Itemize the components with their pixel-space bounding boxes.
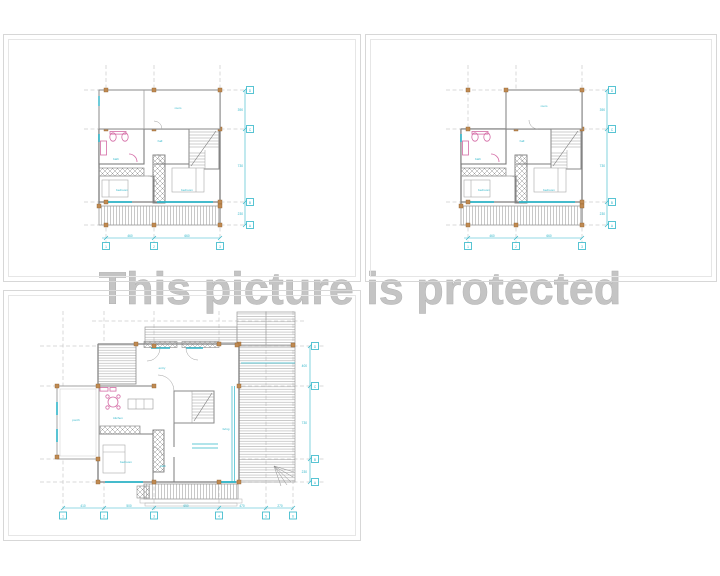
dim-right-3: 230 <box>600 212 606 216</box>
label-bed-right: bedroom <box>543 188 555 192</box>
label-bath: bath <box>475 157 481 161</box>
grid-bubble-3: 3 <box>581 245 583 249</box>
floor-plan-upper-b: room hall bath bedroom bedroom 460 660 3… <box>372 41 710 275</box>
dimension-bottom <box>60 506 297 519</box>
porch <box>57 386 99 459</box>
grid-bubble-6: 6 <box>292 515 294 519</box>
dim-bottom-3: 650 <box>183 504 189 508</box>
label-porch: porch <box>72 418 80 422</box>
floor-plan-upper-a: room hall bath bedroom bedroom 460 660 3… <box>10 41 354 275</box>
grid-bubble-1: 1 <box>62 515 64 519</box>
lintel-1 <box>144 342 177 348</box>
dim-bottom-1: 460 <box>489 234 495 238</box>
entry-steps <box>98 344 136 384</box>
label-top-room: room <box>541 104 548 108</box>
label-bath: bath <box>160 464 166 468</box>
dim-bottom-2: 660 <box>546 234 552 238</box>
grid-bubble-1: 1 <box>467 245 469 249</box>
dim-bottom-1: 410 <box>80 504 86 508</box>
label-bed-left: bedroom <box>478 188 490 192</box>
label-hall: hall <box>158 139 163 143</box>
dim-right-1: 400 <box>302 364 308 368</box>
label-bed-left: bedroom <box>116 188 128 192</box>
grid-bubble-3: 3 <box>219 245 221 249</box>
dim-bottom-5: 270 <box>277 504 283 508</box>
grid-bubble-5: 5 <box>265 515 267 519</box>
dim-right-3: 230 <box>238 212 244 216</box>
top-rooms-variant-b <box>466 88 584 129</box>
beam-hatch-h <box>100 426 140 434</box>
label-top-room: room <box>175 106 182 110</box>
grid-bubble-2: 2 <box>103 515 105 519</box>
dim-bottom-2: 500 <box>126 504 132 508</box>
label-bed-right: bedroom <box>181 188 193 192</box>
grid-bubble-4: 4 <box>218 515 220 519</box>
grid-bubble-1: 1 <box>105 245 107 249</box>
grid-bubble-b: B <box>611 201 613 205</box>
label-living: living <box>223 427 230 431</box>
label-hall: hall <box>520 139 525 143</box>
label-bedroom: bedroom <box>120 460 132 464</box>
top-rooms-variant-a <box>99 88 222 129</box>
bottom-deck <box>137 484 242 506</box>
dim-bottom-4: 470 <box>239 504 245 508</box>
dim-bottom-1: 460 <box>127 234 133 238</box>
watermark-text: This picture is protected <box>99 263 622 315</box>
grid-bubble-b: B <box>249 201 251 205</box>
lintel-2 <box>182 342 219 348</box>
dim-right-2: 730 <box>238 164 244 168</box>
label-entry: entry <box>159 366 166 370</box>
dim-right-1: 390 <box>600 108 606 112</box>
label-kitchen: kitchen <box>113 416 123 420</box>
grid-bubble-b: B <box>314 458 316 462</box>
grid-bubble-2: 2 <box>153 245 155 249</box>
dim-bottom-2: 660 <box>184 234 190 238</box>
dim-right-2: 730 <box>600 164 606 168</box>
label-bath: bath <box>113 157 119 161</box>
dim-right-3: 230 <box>302 470 308 474</box>
dim-right-2: 730 <box>302 421 308 425</box>
bed <box>103 445 125 473</box>
grid-bubble-2: 2 <box>515 245 517 249</box>
dimension-right <box>308 343 319 486</box>
floor-plan-ground: porch kitchen entry bedroom bath living … <box>10 297 354 534</box>
grid-bubble-3: 3 <box>153 515 155 519</box>
staircase <box>174 391 214 423</box>
page-canvas: room hall bath bedroom bedroom 460 660 3… <box>0 0 720 576</box>
dim-right-1: 390 <box>238 108 244 112</box>
